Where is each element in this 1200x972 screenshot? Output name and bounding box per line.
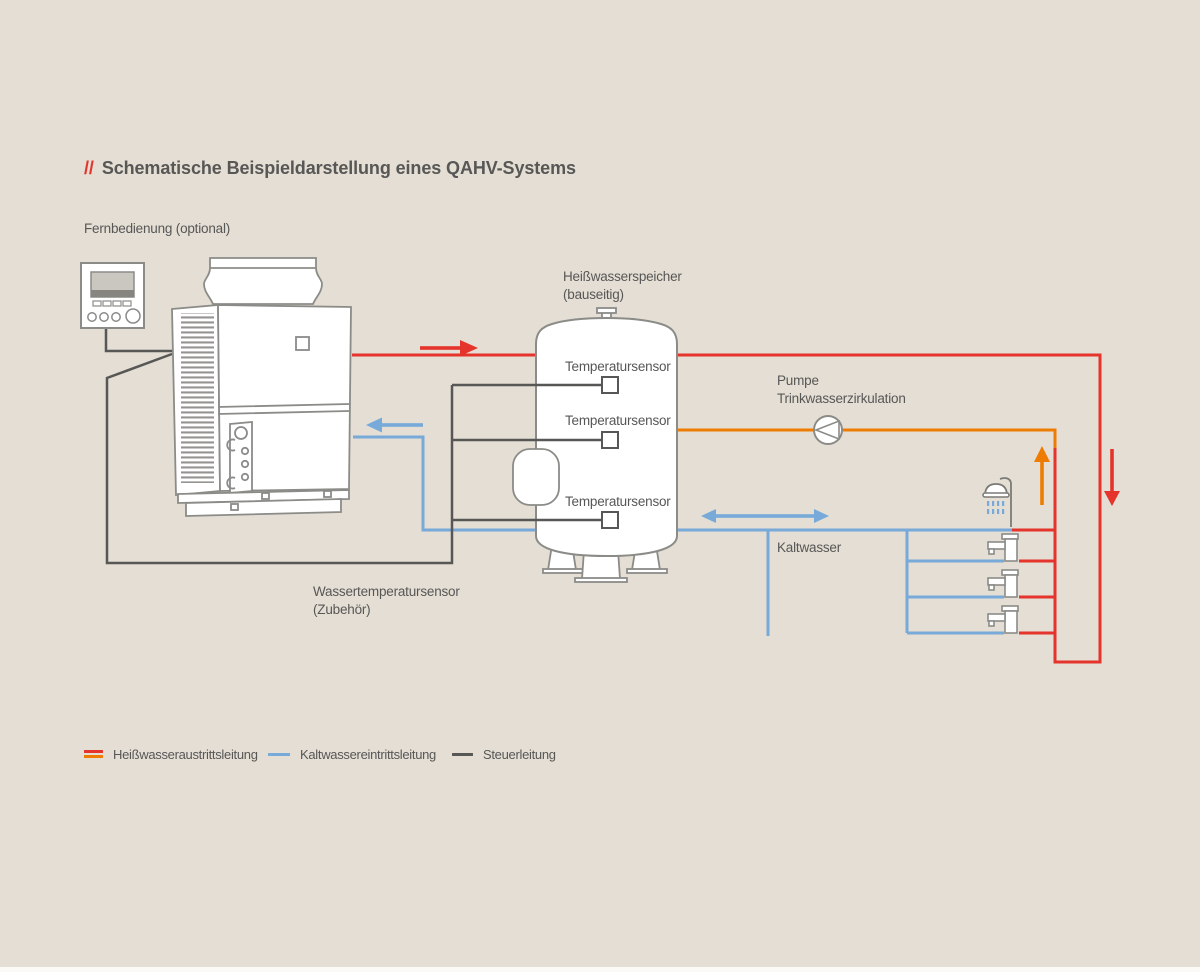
legend-item-control: Steuerleitung xyxy=(452,744,556,764)
label-temperature-sensor-1: Temperatursensor xyxy=(565,358,671,376)
faucet-icon xyxy=(988,570,1018,597)
label-pump-line2: Trinkwasserzirkulation xyxy=(777,390,906,408)
diagram-svg xyxy=(0,0,1200,972)
legend-label-control: Steuerleitung xyxy=(483,747,556,762)
legend-swatch-control xyxy=(452,753,473,756)
label-pump: Pumpe Trinkwasserzirkulation xyxy=(777,372,906,408)
label-temperature-sensor-2: Temperatursensor xyxy=(565,412,671,430)
legend-swatch-cold-water xyxy=(268,753,290,756)
label-tank-line2: (bauseitig) xyxy=(563,286,682,304)
unit-label-plate xyxy=(296,337,309,350)
bottom-edge xyxy=(0,967,1200,972)
temperature-sensor-square xyxy=(602,432,618,448)
flow-arrow-down xyxy=(1104,449,1120,506)
label-temperature-sensor-3: Temperatursensor xyxy=(565,493,671,511)
title-text: Schematische Beispieldarstellung eines Q… xyxy=(102,158,576,178)
label-remote-control: Fernbedienung (optional) xyxy=(84,220,230,238)
label-tank-line1: Heißwasserspeicher xyxy=(563,268,682,286)
flow-arrow-double xyxy=(701,509,829,523)
unit-base-skirt xyxy=(186,499,341,516)
pump-icon xyxy=(814,416,842,444)
storage-tank xyxy=(513,308,677,582)
faucet-icon xyxy=(988,534,1018,561)
faucet-icon xyxy=(988,606,1018,633)
label-water-temperature-sensor-line1: Wassertemperatursensor xyxy=(313,583,460,601)
legend-item-hot-water: Heißwasseraustrittsleitung xyxy=(84,744,258,764)
legend-label-hot-water: Heißwasseraustrittsleitung xyxy=(113,747,258,762)
temperature-sensor-square xyxy=(602,512,618,528)
title-slashes: // xyxy=(84,158,94,178)
shower-spray xyxy=(987,501,1004,514)
label-tank: Heißwasserspeicher (bauseitig) xyxy=(563,268,682,304)
fan-shroud xyxy=(204,258,322,304)
page-title: //Schematische Beispieldarstellung eines… xyxy=(84,158,576,179)
temperature-sensor-square xyxy=(602,377,618,393)
legend-item-cold-water: Kaltwassereintrittsleitung xyxy=(268,744,436,764)
flow-arrow-up xyxy=(1034,446,1050,505)
label-cold-water: Kaltwasser xyxy=(777,539,841,557)
label-water-temperature-sensor: Wassertemperatursensor (Zubehör) xyxy=(313,583,460,619)
remote-cable xyxy=(106,328,172,351)
flow-arrow-left xyxy=(366,418,423,433)
shower-icon xyxy=(983,478,1011,527)
tank-manhole xyxy=(513,449,559,505)
schematic-page: //Schematische Beispieldarstellung eines… xyxy=(0,0,1200,972)
legend-swatch-hot-water xyxy=(84,750,103,758)
label-pump-line1: Pumpe xyxy=(777,372,906,390)
unit-louvers xyxy=(181,313,214,483)
heat-pump-unit xyxy=(172,258,351,516)
label-water-temperature-sensor-line2: (Zubehör) xyxy=(313,601,460,619)
circulation-pipe xyxy=(676,430,1055,448)
legend-label-cold-water: Kaltwassereintrittsleitung xyxy=(300,747,436,762)
remote-control xyxy=(81,263,144,328)
